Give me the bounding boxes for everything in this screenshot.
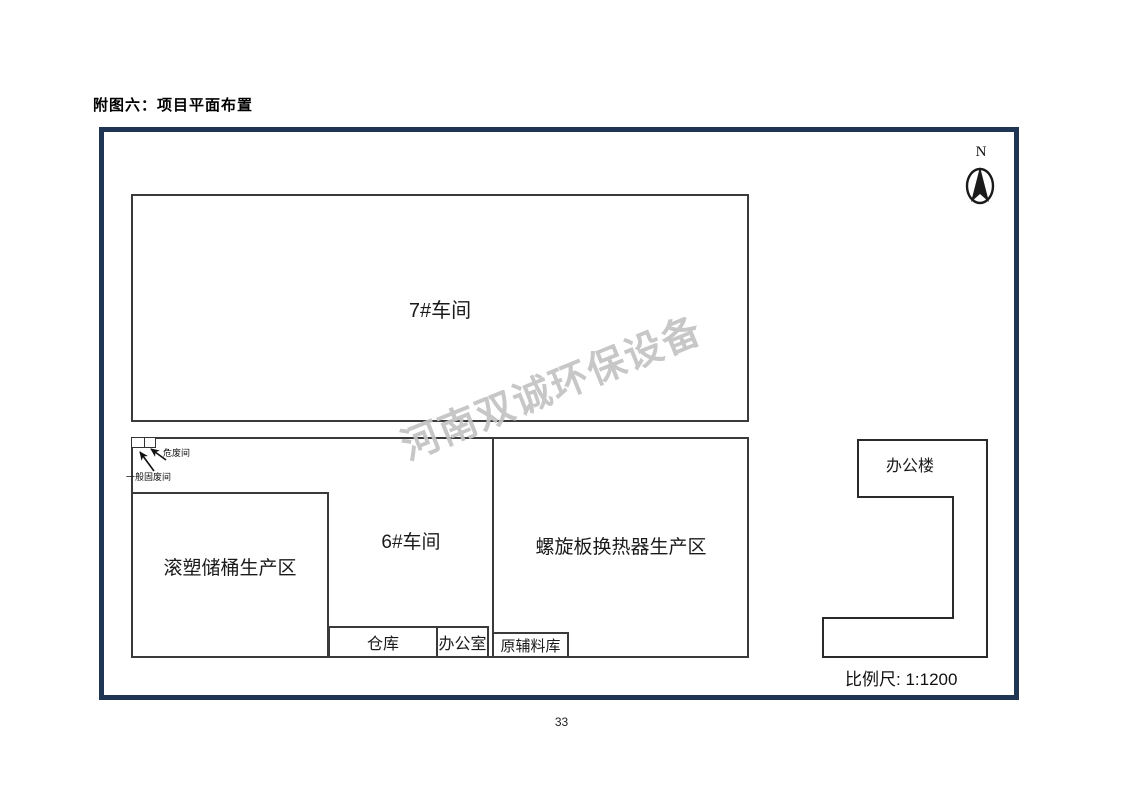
general-waste-room-box (131, 437, 145, 448)
workshop7-label: 7#车间 (409, 294, 471, 323)
hazardous-waste-room-box (144, 437, 156, 448)
rotomolding-area-label: 滚塑储桶生产区 (163, 553, 296, 598)
workshop6-label: 6#车间 (330, 527, 492, 554)
scale-label: 比例尺: 1:1200 (845, 665, 957, 690)
north-label: N (966, 144, 996, 161)
general-waste-label: 一般固废间 (126, 470, 171, 483)
workshop7-box: 7#车间 (131, 194, 749, 422)
raw-material-store-box: 原辅料库 (492, 632, 569, 658)
warehouse-label: 仓库 (367, 630, 399, 654)
raw-material-store-label: 原辅料库 (500, 635, 560, 656)
office-room-label: 办公室 (438, 630, 486, 654)
page-number: 33 (0, 715, 1123, 729)
spiral-area-label: 螺旋板换热器生产区 (494, 532, 748, 559)
figure-caption: 附图六：项目平面布置 (93, 94, 253, 115)
warehouse-box: 仓库 (328, 626, 438, 658)
hazardous-waste-label: 危废间 (163, 446, 190, 459)
document-page: 附图六：项目平面布置 7#车间 滚塑储桶生产区 6#车间 螺旋板换热器生产区 仓… (0, 0, 1123, 794)
office-building-label: 办公楼 (860, 452, 960, 476)
office-room-box: 办公室 (436, 626, 489, 658)
rotomolding-area-box: 滚塑储桶生产区 (131, 492, 329, 658)
